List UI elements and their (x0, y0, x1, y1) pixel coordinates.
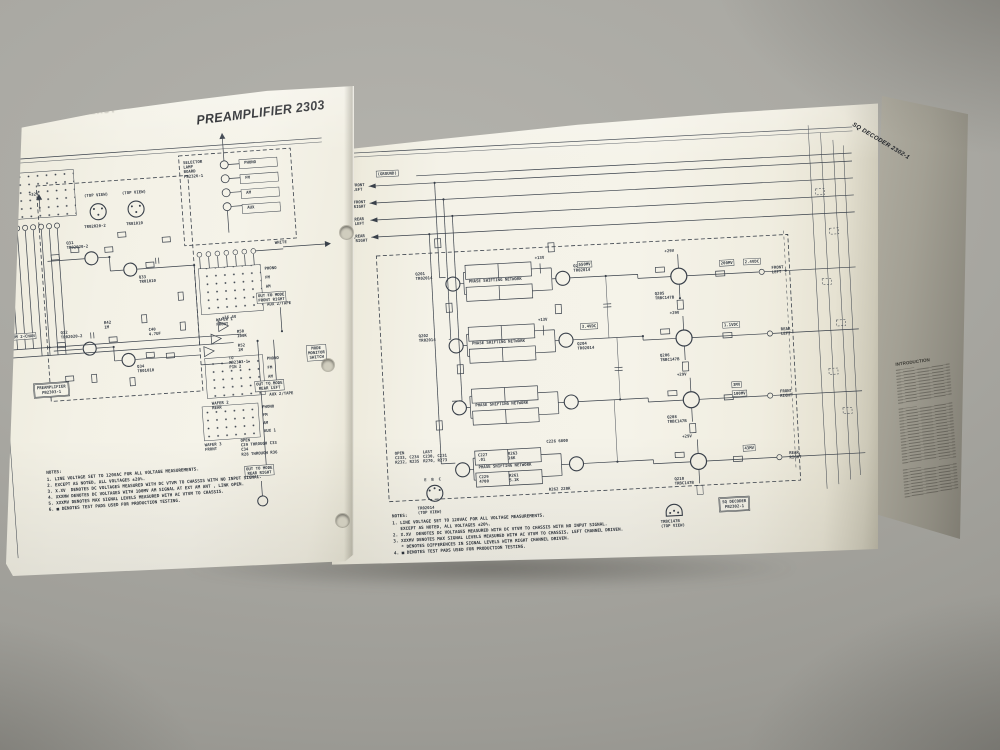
input-rear-left: REAR LEFT (354, 217, 364, 227)
punch-hole (322, 359, 334, 371)
mode-switch-box: MODE MONITOR SWITCH (306, 344, 327, 361)
transistor-label: Q208 TRBC147B (667, 414, 687, 424)
introduction-block: INTRODUCTION (895, 354, 958, 502)
input-rear-right: REAR RIGHT (355, 233, 368, 243)
transistor-label: Q201 TR02014 (415, 271, 432, 281)
transistor-label: Q33 TR01010 (139, 274, 156, 284)
transistor-label: Q34 TR01010 (137, 363, 154, 373)
transistor-label: Q205 TRBC147B (655, 290, 675, 300)
component-label: R261 5.1K (509, 473, 519, 483)
rail-29v: +29V (670, 310, 680, 315)
voltage-callout: 100MV (732, 390, 747, 397)
rail-29v: +29V (682, 434, 692, 439)
wafer-label: WAFER 3 FRONT (205, 442, 222, 452)
intro-paragraph (903, 462, 959, 497)
output-rear-left: REAR LEFT (781, 326, 791, 336)
output-front-right: FRONT RIGHT (780, 388, 793, 398)
rail-29v: +29V (664, 248, 674, 253)
switch-position: AM (266, 284, 271, 289)
pin-letters: E B C (424, 477, 441, 482)
input-front-left: FRONT LEFT (352, 183, 365, 193)
output-rear-right: REAR RIGHT (789, 450, 802, 460)
component-label: R42 1M (104, 320, 112, 330)
switch-position: FM (267, 365, 272, 370)
transistor-label: Q202 TR02014 (418, 333, 435, 343)
punch-hole (336, 514, 349, 527)
transistor-label: Q32 TR02020-2 (60, 329, 82, 340)
voltage-callout: 43MV (743, 444, 756, 451)
switch-position: PHONO (264, 265, 276, 270)
last-parts-note: LAST C230, C231 R270, R273 (423, 449, 448, 464)
punch-hole (340, 226, 353, 239)
wafer-label: WAFER 1 FRONT (3, 165, 20, 175)
component-label: C229 4700 (479, 474, 489, 484)
lamp-label: FM (245, 175, 250, 180)
switch-position: AM (263, 420, 268, 425)
sq-decoder-page: CONTROL AMPLIFIER 2304-1 FROM CONTROL AM… (332, 94, 878, 568)
switch-position: AUX 1 (264, 428, 276, 433)
voltage-callout: 1.1VDC (722, 321, 740, 328)
top-view-label: TRBC147B (TOP VIEW) (661, 518, 686, 528)
show-through-text: CONTROL AMPLIFIER 2304-1 (369, 111, 507, 128)
board-title-box: PREAMPLIFIER PB2303-1 (34, 382, 69, 397)
component-label: C40 4.7UF (148, 327, 161, 337)
voltage-callout: 3MV (731, 381, 742, 388)
preamplifier-page: PREAMPLIFIER 2303 TUNER ALIGNMENT WAFER … (6, 86, 354, 576)
voltage-callout: 550MV (577, 261, 592, 268)
voltage-callout: 3.4VDC (580, 323, 598, 330)
wafer-label: WAFER 2 REAR (212, 400, 229, 410)
intro-paragraph (896, 362, 952, 403)
switch-position: FM (263, 412, 268, 417)
to-pin-label: TO PB2303-1 PIN 2 (229, 355, 249, 370)
switch-position: AM (268, 374, 273, 379)
component-label: R50 100K (237, 329, 247, 339)
voltage-callout: 2.4VDC (743, 258, 761, 265)
transistor-label: Q210 TRBC147B (674, 476, 694, 486)
rail-13v: +13V (535, 255, 545, 260)
switch-position: FM (265, 275, 270, 280)
open-parts-note: OPEN C29 THROUGH C33 C34 R28 THROUGH R36 (240, 436, 277, 457)
ground-label: (GROUND) (376, 170, 399, 178)
intro-paragraph (899, 401, 957, 464)
transistor-label: Q31 TR02020-2 (66, 240, 88, 251)
switch-position: PHONO (262, 404, 274, 409)
component-label: C227 .01 (478, 452, 488, 462)
sq-decoder-linework (308, 67, 878, 567)
photo-backdrop: INTRODUCTION (0, 0, 1000, 750)
open-parts-note: OPEN C233, C234 R232, R235 (395, 450, 420, 465)
wire-color-label: WHITE (275, 240, 287, 245)
out-to-mode-box: OUT TO MODE FRONT RIGHT (256, 291, 286, 304)
input-front-right: FRONT RIGHT (353, 199, 366, 209)
selector-board-label: SELECTOR LAMP BOARD PB2326-1 (183, 159, 204, 179)
transistor-label: Q206 TRBC147B (660, 352, 680, 362)
rail-29v: +29V (677, 372, 687, 377)
lamp-label: AM (246, 190, 251, 195)
switch-position: PHONO (267, 355, 279, 360)
output-front-left: FRONT LEFT (771, 265, 784, 275)
transistor-label: Q204 TR02014 (577, 341, 594, 351)
rail-32v: +32V (29, 192, 39, 197)
component-label: R52 1M (238, 343, 246, 353)
lamp-label: PHONO (244, 160, 256, 165)
out-to-mode-box: OUT TO MODE REAR LEFT (254, 379, 284, 392)
lamp-label: AUX (247, 205, 255, 210)
rail-13v: +13V (538, 317, 548, 322)
voltage-callout: 200MV (719, 259, 734, 266)
board-title-box: SQ DECODER PB2302-1 (719, 497, 749, 512)
component-label: R263 16K (508, 451, 518, 461)
